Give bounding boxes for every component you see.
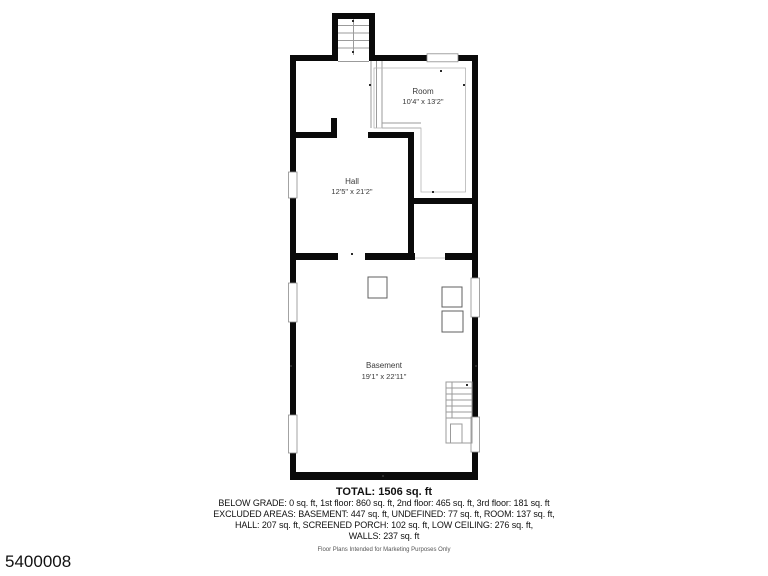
window-basement-left-lower [289,415,298,453]
wall-hall-top-left [290,132,337,138]
room-label: Room [412,87,434,96]
exterior-walls [290,13,478,480]
floor-areas-text: BELOW GRADE: 0 sq. ft, 1st floor: 860 sq… [0,498,768,509]
room-dimensions: 10'4" x 13'2" [402,97,443,106]
hall-label: Hall [345,177,359,186]
wall-protrusion-right [369,13,375,61]
upper-staircase [338,19,421,128]
window-hall-left [289,172,298,198]
room-labels: Room 10'4" x 13'2" Hall 12'5" x 21'2" Ba… [331,87,443,381]
window-top [427,54,458,62]
excluded-areas-text: EXCLUDED AREAS: BASEMENT: 447 sq. ft, UN… [0,509,768,520]
walls-area-text: WALLS: 237 sq. ft [0,531,768,542]
wall-protrusion-left [332,13,338,61]
disclaimer-text: Floor Plans Intended for Marketing Purpo… [0,547,768,553]
wall-top-left-segment [290,55,332,61]
excluded-areas-text-2: HALL: 207 sq. ft, SCREENED PORCH: 102 sq… [0,520,768,531]
wall-hall-top-right [368,132,414,138]
wall-right [472,55,478,480]
basement-dimensions: 19'1" x 22'11" [362,372,407,381]
interior-walls [290,118,478,260]
hvac-unit-upper [442,287,462,307]
wall-basement-divider-middle [365,253,415,260]
basement-fixtures [368,277,463,332]
wall-closet-stub [331,118,337,138]
basement-staircase [446,382,472,443]
wall-room-bottom [408,198,478,204]
wall-protrusion-top [332,13,375,19]
wall-basement-divider-left [290,253,338,260]
tick-markers [290,20,477,477]
hall-dimensions: 12'5" x 21'2" [331,187,372,196]
hvac-unit-lower [442,311,463,332]
floor-plan-page: { "page": { "background_color": "#ffffff… [0,0,768,576]
listing-id: 5400008 [5,552,71,572]
window-basement-left-upper [289,283,298,322]
total-area-text: TOTAL: 1506 sq. ft [0,486,768,498]
wall-hall-right-vertical [408,132,414,260]
area-summary: TOTAL: 1506 sq. ft BELOW GRADE: 0 sq. ft… [0,486,768,553]
wall-basement-divider-right [445,253,478,260]
window-basement-right-upper [471,278,480,317]
support-post [368,277,387,298]
wall-top-right-segment [375,55,478,61]
basement-label: Basement [366,361,403,370]
